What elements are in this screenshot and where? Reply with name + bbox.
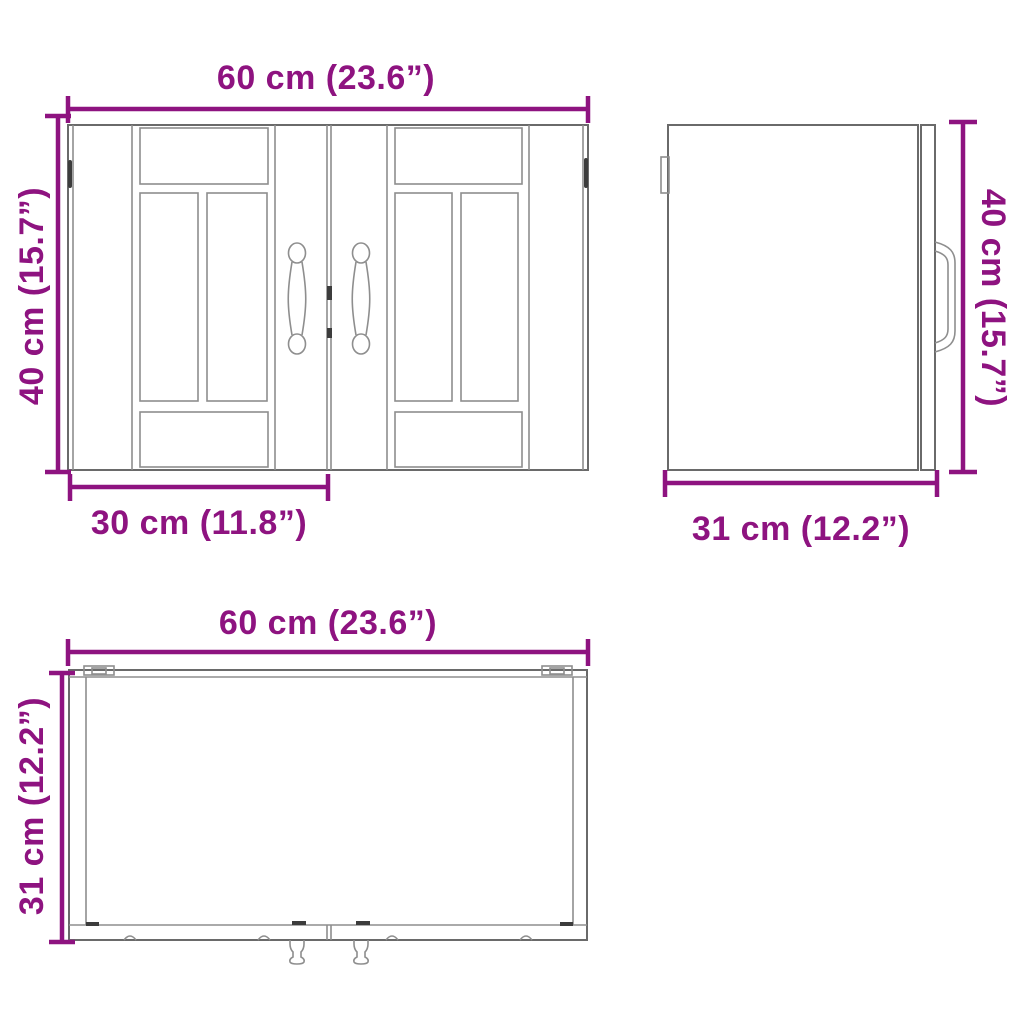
side-view-frame: [668, 125, 935, 470]
right-door-top-panel: [395, 128, 522, 184]
side-carcass-outline: [668, 125, 918, 470]
top-width-label: 60 cm (23.6”): [219, 604, 437, 642]
side-height-dimension: [949, 122, 977, 472]
front-width-dimension: [68, 96, 588, 123]
hinge-icon: [584, 158, 588, 188]
side-depth-dimension: [665, 470, 937, 497]
side-view-details: [661, 157, 955, 352]
cabinet-dimension-diagram: 60 cm (23.6”) 40 cm (15.7”) 30 cm (11.8”…: [0, 0, 1024, 1024]
top-width-dimension: [68, 639, 588, 666]
right-door: [352, 125, 529, 470]
top-view-details: [69, 666, 587, 964]
left-door: [132, 125, 306, 470]
right-door-glass-panel: [461, 193, 518, 401]
top-cabinet-outline: [69, 670, 587, 940]
top-view-right-handle: [354, 940, 368, 964]
front-hinge-marks: [68, 158, 588, 338]
front-width-label: 60 cm (23.6”): [217, 59, 435, 97]
side-view: [661, 125, 955, 470]
left-door-glass-panel: [207, 193, 267, 401]
side-height-label: 40 cm (15.7”): [974, 189, 1012, 407]
right-door-glass-panel: [395, 193, 452, 401]
front-height-label: 40 cm (15.7”): [13, 187, 51, 405]
front-view: [68, 125, 588, 470]
left-door-handle: [288, 243, 306, 354]
door-gap-mark: [327, 328, 332, 338]
left-door-top-panel: [140, 128, 268, 184]
top-view-left-handle: [290, 940, 304, 964]
right-door-handle: [352, 243, 370, 354]
top-view: [69, 666, 587, 964]
side-depth-label: 31 cm (12.2”): [692, 510, 910, 548]
top-view-frame: [69, 670, 587, 940]
left-door-bottom-panel: [140, 412, 268, 467]
right-door-bottom-panel: [395, 412, 522, 467]
front-door-width-dimension: [70, 474, 328, 501]
diagram-canvas: 60 cm (23.6”) 40 cm (15.7”) 30 cm (11.8”…: [0, 0, 1024, 1024]
front-door-width-label: 30 cm (11.8”): [91, 504, 307, 542]
top-depth-label: 31 cm (12.2”): [13, 697, 51, 915]
side-door-panel: [921, 125, 935, 470]
top-depth-dimension: [49, 673, 75, 942]
hinge-icon: [68, 160, 72, 188]
door-gap-mark: [327, 286, 332, 300]
side-door-handle: [935, 242, 955, 352]
left-door-glass-panel: [140, 193, 198, 401]
